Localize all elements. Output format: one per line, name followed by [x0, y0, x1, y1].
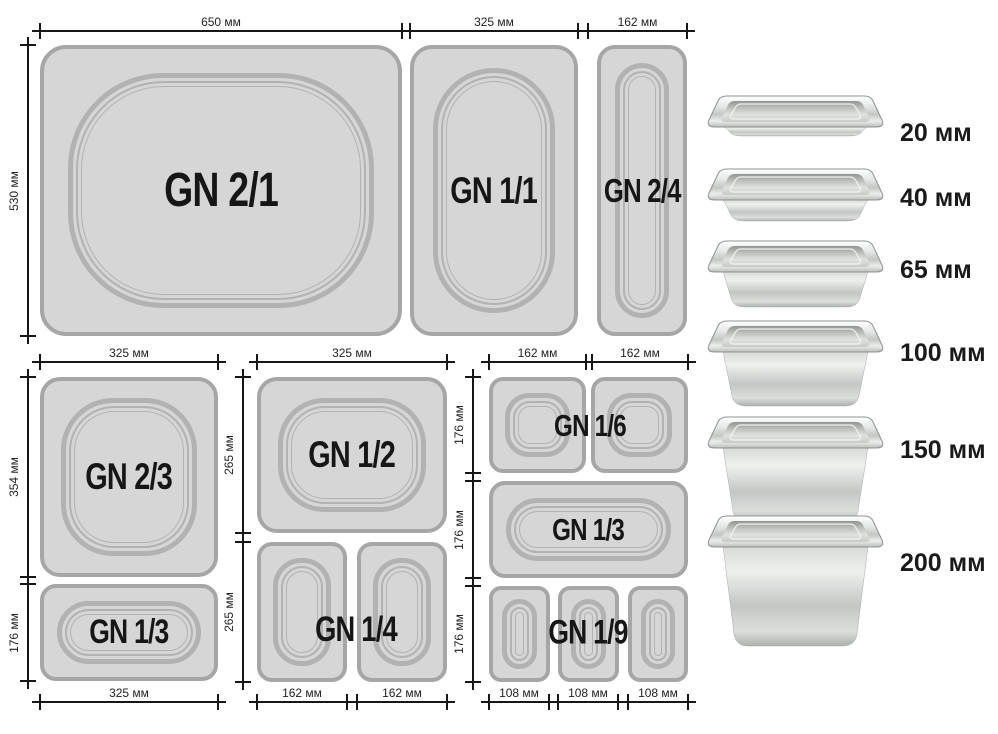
pan-photo-200mm: [703, 512, 888, 652]
dim-bm-height-265mm-b: 265 мм: [242, 534, 244, 690]
dim-br-height-176mm-c: 176 мм: [472, 578, 474, 690]
dim-label-bm-162mm-a: 162 мм: [282, 686, 322, 700]
dim-br-top-162mm-a: 162 мм: [481, 361, 594, 363]
depth-label-65mm: 65 мм: [900, 254, 995, 286]
pan-gn-2-1-label: GN 2/1: [164, 163, 278, 218]
pan-photo-40mm: [703, 165, 888, 227]
dim-label-530mm: 530 мм: [7, 171, 21, 211]
dim-label-bm-162mm-b: 162 мм: [382, 686, 422, 700]
dim-bm-top-325mm: 325 мм: [249, 361, 455, 363]
dim-width-162mm-top: 162 мм: [580, 30, 695, 32]
pan-gn-1-3-right: GN 1/3: [489, 481, 688, 578]
dim-label-bm-265mm-a: 265 мм: [222, 435, 236, 475]
dim-label-br-top-162mm-a: 162 мм: [518, 346, 558, 360]
pan-gn-2-4: GN 2/4: [597, 45, 687, 336]
pan-gn-2-3-label: GN 2/3: [86, 456, 173, 498]
dim-label-162mm-top: 162 мм: [618, 15, 658, 29]
pan-gn-1-9-label: GN 1/9: [548, 614, 627, 653]
dim-height-530mm: 530 мм: [27, 37, 29, 344]
dim-br-bottom-108mm-c: 108 мм: [620, 701, 696, 703]
dim-label-br-176mm-b: 176 мм: [452, 510, 466, 550]
dim-label-bl-bottom-325mm: 325 мм: [109, 686, 149, 700]
dim-bm-bottom-162mm-a: 162 мм: [249, 701, 355, 703]
depth-label-150mm: 150 мм: [900, 434, 995, 466]
dim-bl-bottom-325mm: 325 мм: [32, 701, 226, 703]
dim-bl-height-354mm: 354 мм: [27, 369, 29, 585]
dim-label-br-108mm-b: 108 мм: [568, 686, 608, 700]
pan-gn-1-1-label: GN 1/1: [451, 170, 538, 212]
pan-gn-1-2-label: GN 1/2: [309, 434, 396, 476]
pan-gn-1-9-c-inner-rings: [641, 599, 675, 669]
pan-gn-2-1: GN 2/1: [40, 45, 402, 336]
pan-gn-1-2: GN 1/2: [257, 377, 447, 533]
pan-gn-1-4-label: GN 1/4: [315, 610, 397, 650]
dim-br-height-176mm-b: 176 мм: [472, 473, 474, 586]
dim-label-bl-176mm: 176 мм: [7, 613, 21, 653]
pan-gn-1-3-left: GN 1/3: [40, 584, 218, 681]
dim-bl-height-176mm: 176 мм: [27, 576, 29, 689]
pan-photo-65mm: [703, 237, 888, 313]
depth-label-100mm: 100 мм: [900, 337, 995, 369]
dim-label-bm-top-325mm: 325 мм: [332, 346, 372, 360]
pan-photo-100mm: [703, 317, 888, 412]
gn-container-size-chart: 650 мм 325 мм 162 мм 530 мм GN 2/1 GN 1/…: [0, 0, 998, 734]
pan-gn-1-3-left-label: GN 1/3: [89, 613, 168, 652]
dim-label-br-108mm-c: 108 мм: [638, 686, 678, 700]
dim-bm-bottom-162mm-b: 162 мм: [349, 701, 455, 703]
dim-label-br-176mm-c: 176 мм: [452, 614, 466, 654]
dim-label-650mm: 650 мм: [201, 15, 241, 29]
pan-photo-150mm: [703, 413, 888, 528]
pan-photo-20mm: [703, 92, 888, 142]
depth-label-200mm: 200 мм: [900, 547, 995, 579]
pan-gn-2-3: GN 2/3: [40, 377, 218, 577]
pan-gn-1-6-label: GN 1/6: [554, 408, 626, 444]
dim-label-325mm-top: 325 мм: [474, 15, 514, 29]
dim-br-height-176mm-a: 176 мм: [472, 369, 474, 481]
dim-label-br-top-162mm-b: 162 мм: [620, 346, 660, 360]
dim-label-br-108mm-a: 108 мм: [499, 686, 539, 700]
dim-width-650mm: 650 мм: [32, 30, 410, 32]
pan-gn-1-9-a-inner-rings: [502, 599, 537, 669]
pan-gn-1-3-right-label: GN 1/3: [553, 512, 625, 548]
dim-bl-top-325mm: 325 мм: [32, 361, 226, 363]
dim-br-top-162mm-b: 162 мм: [584, 361, 696, 363]
pan-gn-1-1: GN 1/1: [410, 45, 578, 336]
dim-label-bl-354mm: 354 мм: [7, 457, 21, 497]
depth-label-40mm: 40 мм: [900, 182, 995, 214]
pan-gn-2-4-label: GN 2/4: [604, 172, 681, 210]
pan-gn-1-9-c: [628, 586, 688, 682]
dim-br-bottom-108mm-b: 108 мм: [550, 701, 626, 703]
depth-label-20mm: 20 мм: [900, 117, 995, 149]
dim-label-bm-265mm-b: 265 мм: [222, 592, 236, 632]
dim-br-bottom-108mm-a: 108 мм: [481, 701, 557, 703]
pan-gn-1-9-a: [489, 586, 550, 682]
dim-label-bl-top-325mm: 325 мм: [109, 346, 149, 360]
dim-bm-height-265mm-a: 265 мм: [242, 369, 244, 541]
dim-width-325mm-top: 325 мм: [402, 30, 586, 32]
dim-label-br-176mm-a: 176 мм: [452, 405, 466, 445]
